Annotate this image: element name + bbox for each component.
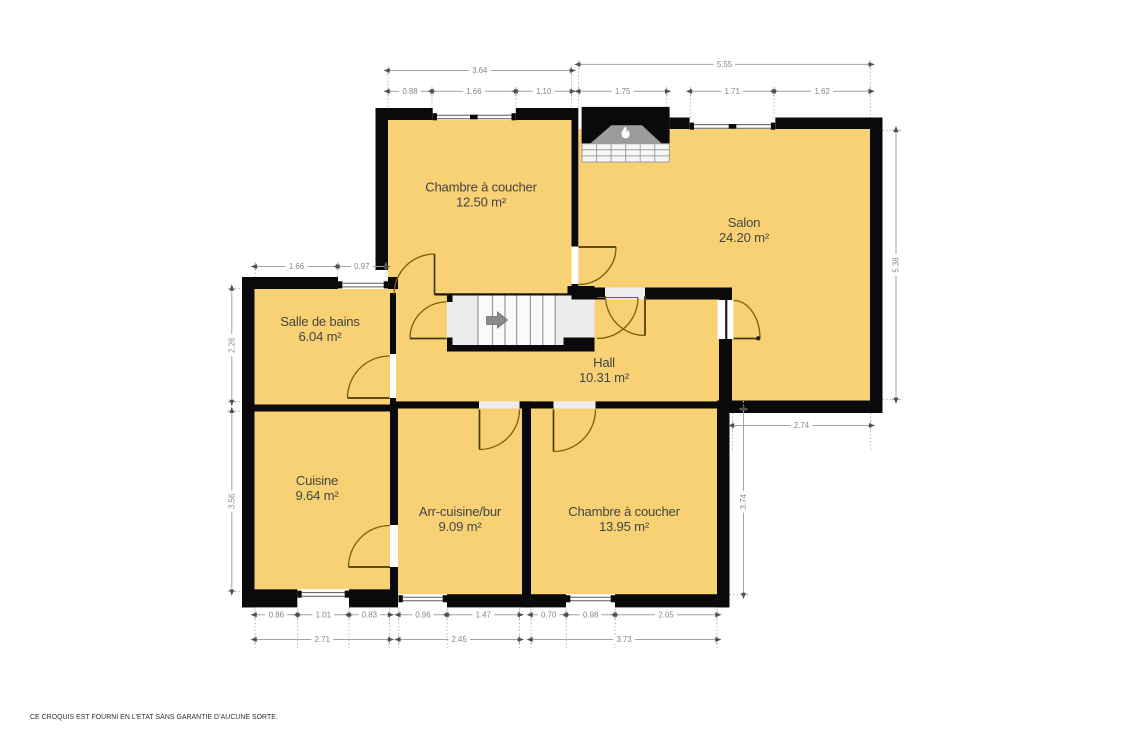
svg-text:0.96: 0.96	[415, 610, 431, 619]
svg-text:6.04 m²: 6.04 m²	[299, 329, 343, 344]
svg-text:Arr-cuisine/bur: Arr-cuisine/bur	[419, 504, 502, 519]
svg-text:3.74: 3.74	[739, 494, 748, 510]
svg-text:2.45: 2.45	[451, 635, 467, 644]
svg-text:CE CROQUIS EST FOURNI EN L’ETA: CE CROQUIS EST FOURNI EN L’ETAT SANS GAR…	[30, 714, 278, 721]
svg-text:2.26: 2.26	[227, 337, 236, 353]
svg-text:9.09 m²: 9.09 m²	[439, 519, 483, 534]
svg-text:1.66: 1.66	[466, 87, 482, 96]
svg-text:10.31 m²: 10.31 m²	[579, 370, 630, 385]
svg-text:2.71: 2.71	[315, 635, 330, 644]
svg-text:0.97: 0.97	[354, 262, 369, 271]
svg-text:3.64: 3.64	[472, 66, 488, 75]
svg-text:12.50 m²: 12.50 m²	[456, 195, 507, 210]
svg-text:1.75: 1.75	[615, 87, 631, 96]
svg-text:0.70: 0.70	[541, 610, 557, 619]
svg-text:1.66: 1.66	[289, 262, 305, 271]
svg-text:Chambre à coucher: Chambre à coucher	[425, 180, 537, 195]
svg-text:0.83: 0.83	[362, 610, 378, 619]
svg-text:1.71: 1.71	[725, 87, 740, 96]
svg-text:1.62: 1.62	[814, 87, 829, 96]
svg-text:2.05: 2.05	[658, 610, 674, 619]
svg-text:2.74: 2.74	[794, 421, 810, 430]
svg-text:5.38: 5.38	[892, 257, 901, 273]
svg-text:0.86: 0.86	[269, 610, 285, 619]
svg-text:Chambre à coucher: Chambre à coucher	[568, 504, 680, 519]
svg-text:5.55: 5.55	[717, 60, 733, 69]
svg-text:1.47: 1.47	[476, 610, 491, 619]
svg-text:Salle de bains: Salle de bains	[280, 314, 360, 329]
svg-text:0.88: 0.88	[402, 87, 418, 96]
svg-text:1.10: 1.10	[536, 87, 552, 96]
svg-text:0.98: 0.98	[583, 610, 599, 619]
svg-text:13.95 m²: 13.95 m²	[599, 519, 650, 534]
svg-text:3.73: 3.73	[616, 635, 632, 644]
svg-text:Salon: Salon	[728, 215, 761, 230]
svg-text:24.20 m²: 24.20 m²	[719, 230, 770, 245]
svg-text:9.64 m²: 9.64 m²	[296, 488, 340, 503]
svg-text:Hall: Hall	[593, 355, 615, 370]
svg-text:1.01: 1.01	[316, 610, 331, 619]
svg-text:Cuisine: Cuisine	[296, 473, 338, 488]
svg-text:3.56: 3.56	[227, 493, 236, 509]
